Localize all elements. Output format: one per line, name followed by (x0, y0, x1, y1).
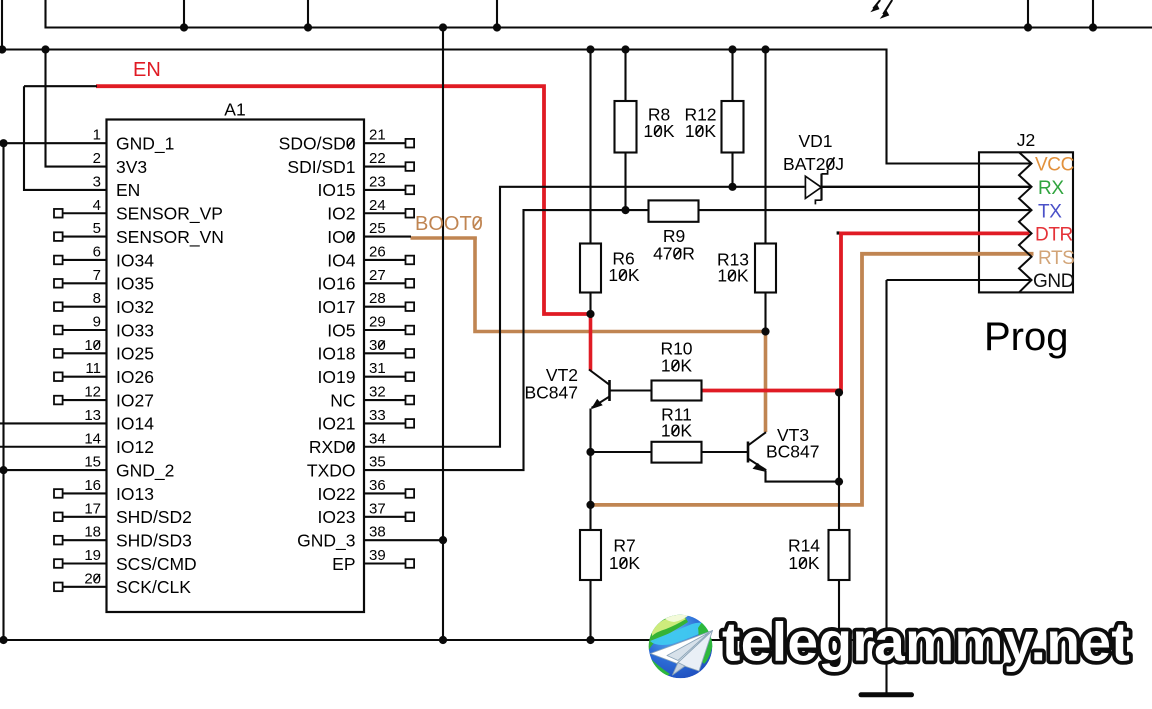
svg-text:GND: GND (1033, 271, 1074, 292)
svg-text:telegrammy.net: telegrammy.net (722, 611, 1130, 673)
svg-text:DTR: DTR (1035, 225, 1073, 246)
svg-text:IO26: IO26 (116, 367, 154, 387)
svg-text:23: 23 (369, 173, 386, 190)
svg-text:24: 24 (369, 197, 386, 214)
svg-text:EN: EN (133, 59, 161, 81)
svg-text:IO27: IO27 (116, 390, 154, 410)
svg-text:19: 19 (84, 547, 101, 564)
svg-text:SCK/CLK: SCK/CLK (116, 577, 191, 597)
svg-text:10K: 10K (661, 356, 692, 376)
svg-text:10K: 10K (717, 266, 748, 286)
svg-text:IO32: IO32 (116, 297, 154, 317)
svg-text:IO25: IO25 (116, 344, 154, 364)
svg-text:17: 17 (84, 500, 101, 517)
svg-text:18: 18 (84, 524, 101, 541)
svg-text:Prog: Prog (984, 315, 1069, 359)
svg-text:SENSOR_VP: SENSOR_VP (116, 204, 223, 225)
svg-text:39: 39 (369, 547, 386, 564)
svg-text:BOOT0: BOOT0 (415, 213, 483, 235)
svg-text:IO19: IO19 (318, 367, 356, 387)
svg-text:37: 37 (369, 500, 386, 517)
svg-text:TXDO: TXDO (307, 460, 356, 480)
svg-text:IO13: IO13 (116, 484, 154, 504)
svg-text:IO5: IO5 (327, 320, 355, 340)
svg-text:SHD/SD3: SHD/SD3 (116, 530, 192, 550)
svg-text:33: 33 (369, 407, 386, 424)
svg-text:RXD0: RXD0 (309, 437, 356, 457)
svg-text:10K: 10K (788, 553, 819, 573)
svg-text:IO35: IO35 (116, 274, 154, 294)
svg-text:10: 10 (84, 337, 101, 354)
svg-text:IO4: IO4 (327, 250, 355, 270)
svg-text:36: 36 (369, 477, 386, 494)
svg-text:4: 4 (93, 197, 101, 214)
svg-text:EP: EP (332, 554, 355, 574)
svg-text:16: 16 (84, 477, 101, 494)
svg-text:1: 1 (93, 127, 101, 144)
svg-text:IO23: IO23 (318, 507, 356, 527)
svg-text:GND_3: GND_3 (297, 530, 355, 551)
svg-text:EN: EN (116, 180, 140, 200)
svg-text:10K: 10K (609, 553, 640, 573)
svg-text:22: 22 (369, 150, 386, 167)
svg-text:7: 7 (93, 267, 101, 284)
svg-text:14: 14 (84, 430, 101, 447)
svg-text:TX: TX (1038, 201, 1062, 222)
svg-text:26: 26 (369, 243, 386, 260)
svg-text:IO18: IO18 (318, 344, 356, 364)
svg-text:BC847: BC847 (766, 442, 820, 462)
svg-text:28: 28 (369, 290, 386, 307)
svg-text:IO16: IO16 (318, 274, 356, 294)
svg-text:2: 2 (93, 150, 101, 167)
svg-text:10K: 10K (685, 121, 716, 141)
svg-text:IO14: IO14 (116, 414, 154, 434)
svg-text:21: 21 (369, 127, 386, 144)
svg-text:20: 20 (84, 570, 101, 587)
svg-text:SDI/SD1: SDI/SD1 (287, 157, 355, 177)
svg-text:IO21: IO21 (318, 414, 356, 434)
svg-text:34: 34 (369, 430, 386, 447)
svg-text:470R: 470R (653, 244, 695, 264)
svg-text:SDO/SD0: SDO/SD0 (279, 134, 356, 154)
svg-text:RX: RX (1038, 178, 1064, 199)
svg-text:15: 15 (84, 454, 101, 471)
svg-text:3: 3 (93, 173, 101, 190)
svg-text:NC: NC (330, 390, 355, 410)
svg-text:VCC: VCC (1035, 155, 1074, 176)
svg-text:RTS: RTS (1038, 248, 1074, 269)
svg-text:BAT20J: BAT20J (783, 154, 844, 174)
svg-text:8: 8 (93, 290, 101, 307)
svg-text:SCS/CMD: SCS/CMD (116, 554, 197, 574)
svg-text:32: 32 (369, 384, 386, 401)
svg-text:IO17: IO17 (318, 297, 356, 317)
svg-text:IO15: IO15 (318, 180, 356, 200)
svg-text:31: 31 (369, 360, 386, 377)
svg-text:IO2: IO2 (327, 204, 355, 224)
svg-text:BC847: BC847 (524, 383, 578, 403)
svg-text:6: 6 (93, 243, 101, 260)
svg-text:38: 38 (369, 524, 386, 541)
svg-text:J2: J2 (1017, 130, 1035, 150)
svg-text:27: 27 (369, 267, 386, 284)
svg-text:IO12: IO12 (116, 437, 154, 457)
svg-text:GND_2: GND_2 (116, 460, 174, 481)
svg-text:25: 25 (369, 220, 386, 237)
svg-text:IO34: IO34 (116, 250, 154, 270)
svg-text:5: 5 (93, 220, 101, 237)
svg-text:29: 29 (369, 314, 386, 331)
svg-text:30: 30 (369, 337, 386, 354)
svg-text:VD1: VD1 (798, 131, 832, 151)
svg-text:IO33: IO33 (116, 320, 154, 340)
svg-text:35: 35 (369, 454, 386, 471)
svg-text:3V3: 3V3 (116, 157, 147, 177)
svg-text:9: 9 (93, 314, 101, 331)
svg-text:10K: 10K (661, 421, 692, 441)
svg-text:10K: 10K (608, 265, 639, 285)
svg-text:SENSOR_VN: SENSOR_VN (116, 227, 224, 248)
svg-text:GND_1: GND_1 (116, 134, 174, 155)
svg-text:12: 12 (84, 384, 101, 401)
svg-text:SHD/SD2: SHD/SD2 (116, 507, 192, 527)
svg-text:A1: A1 (224, 100, 245, 120)
svg-text:11: 11 (85, 360, 101, 377)
svg-text:IO22: IO22 (318, 484, 356, 504)
svg-text:13: 13 (84, 407, 101, 424)
svg-text:10K: 10K (643, 121, 674, 141)
